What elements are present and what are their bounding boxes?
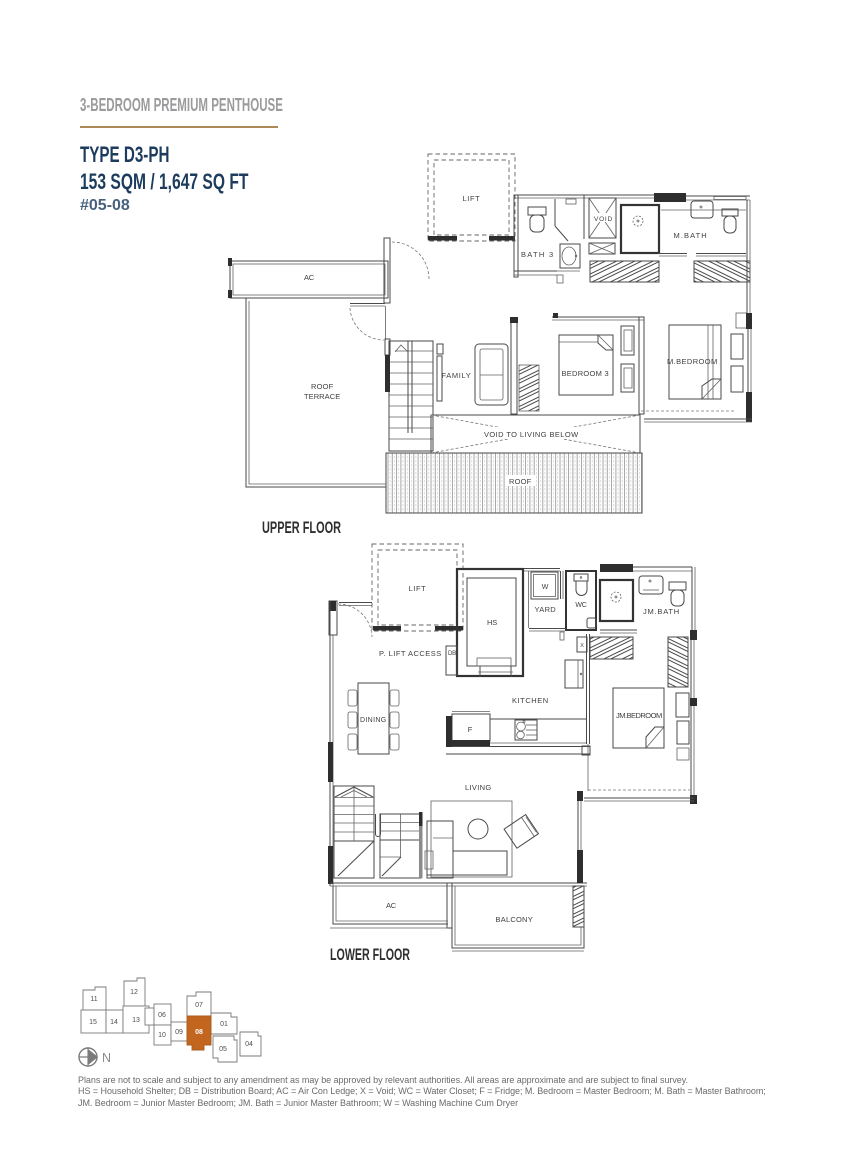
svg-text:JM.BEDROOM: JM.BEDROOM xyxy=(616,711,662,720)
svg-text:M.BATH: M.BATH xyxy=(674,231,707,240)
svg-text:13: 13 xyxy=(132,1017,140,1024)
svg-text:VOID: VOID xyxy=(594,216,613,223)
svg-text:AC: AC xyxy=(386,901,397,910)
svg-text:LIFT: LIFT xyxy=(409,584,427,593)
svg-text:BALCONY: BALCONY xyxy=(496,915,533,924)
svg-text:W: W xyxy=(542,584,549,591)
svg-text:JM.BATH: JM.BATH xyxy=(643,607,679,616)
svg-text:BEDROOM 3: BEDROOM 3 xyxy=(562,369,609,378)
svg-text:09: 09 xyxy=(175,1029,183,1036)
svg-text:14: 14 xyxy=(110,1019,118,1026)
svg-text:AC: AC xyxy=(304,273,315,282)
svg-text:WC: WC xyxy=(575,602,586,609)
svg-text:DB: DB xyxy=(448,651,456,657)
svg-text:KITCHEN: KITCHEN xyxy=(512,696,548,705)
svg-text:15: 15 xyxy=(89,1019,97,1026)
svg-text:UPPER FLOOR: UPPER FLOOR xyxy=(262,518,341,537)
svg-text:N: N xyxy=(102,1051,111,1065)
svg-text:VOID TO LIVING BELOW: VOID TO LIVING BELOW xyxy=(484,430,579,439)
svg-text:01: 01 xyxy=(220,1021,228,1028)
svg-text:07: 07 xyxy=(195,1002,203,1009)
svg-text:11: 11 xyxy=(90,996,97,1003)
svg-text:12: 12 xyxy=(130,989,138,996)
svg-text:DINING: DINING xyxy=(360,717,386,724)
svg-text:LIFT: LIFT xyxy=(463,194,481,203)
svg-text:08: 08 xyxy=(195,1029,203,1036)
svg-text:TERRACE: TERRACE xyxy=(304,392,340,401)
svg-text:ROOF: ROOF xyxy=(311,382,334,391)
svg-text:FAMILY: FAMILY xyxy=(442,371,471,380)
svg-text:X: X xyxy=(580,643,584,649)
svg-text:10: 10 xyxy=(158,1032,166,1039)
svg-text:LIVING: LIVING xyxy=(465,783,491,792)
svg-text:P. LIFT ACCESS: P. LIFT ACCESS xyxy=(379,649,441,658)
svg-text:YARD: YARD xyxy=(535,605,557,614)
svg-text:BATH 3: BATH 3 xyxy=(521,250,553,259)
svg-text:F: F xyxy=(468,725,473,734)
svg-text:06: 06 xyxy=(158,1012,166,1019)
svg-text:04: 04 xyxy=(245,1041,253,1048)
svg-text:ROOF: ROOF xyxy=(509,477,532,486)
svg-text:LOWER FLOOR: LOWER FLOOR xyxy=(330,945,410,964)
svg-text:HS: HS xyxy=(487,618,497,627)
svg-text:M.BEDROOM: M.BEDROOM xyxy=(667,357,717,366)
svg-text:05: 05 xyxy=(219,1046,227,1053)
